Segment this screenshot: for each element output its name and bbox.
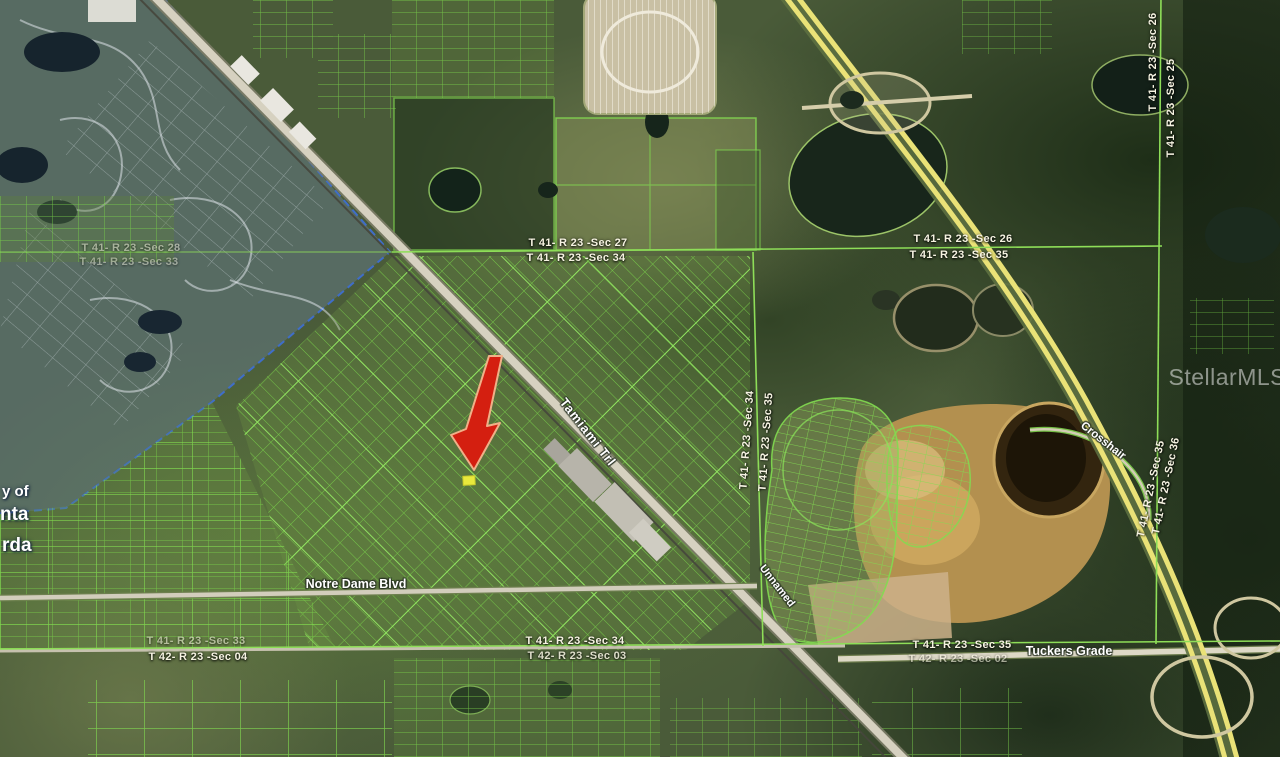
map-vector-layer bbox=[0, 0, 1280, 757]
satellite-parcel-map[interactable]: T 41- R 23 -Sec 27 T 41- R 23 -Sec 34 T … bbox=[0, 0, 1280, 757]
trailer-park bbox=[584, 0, 716, 114]
i75-interchange-north bbox=[802, 73, 972, 133]
highlighted-parcel[interactable] bbox=[463, 476, 475, 486]
